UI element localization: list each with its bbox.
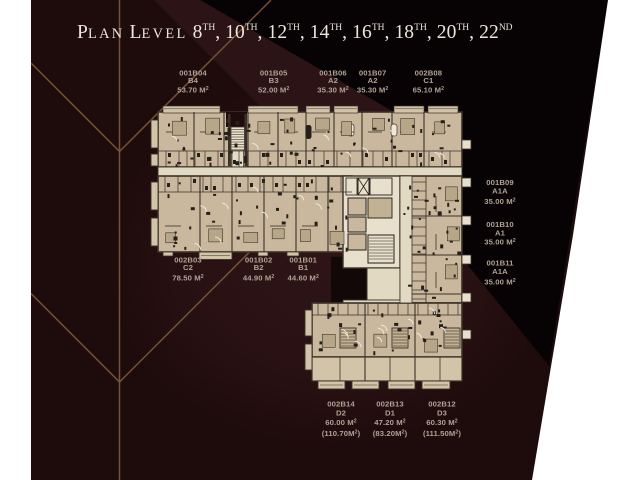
svg-text:B4: B4 <box>188 76 199 85</box>
svg-text:44.60 M2: 44.60 M2 <box>287 274 318 283</box>
svg-text:35.00 M2: 35.00 M2 <box>484 238 515 247</box>
svg-text:35.30 M2: 35.30 M2 <box>317 86 348 95</box>
svg-text:A2: A2 <box>328 76 338 85</box>
svg-text:A1A: A1A <box>492 187 508 196</box>
svg-text:002B14: 002B14 <box>327 400 355 409</box>
svg-text:60.00 M2: 60.00 M2 <box>325 418 356 427</box>
svg-text:65.10 M2: 65.10 M2 <box>413 86 444 95</box>
svg-text:35.30 M2: 35.30 M2 <box>357 86 388 95</box>
svg-text:002B12: 002B12 <box>428 400 456 409</box>
svg-text:D1: D1 <box>385 409 396 418</box>
svg-text:52.00 M2: 52.00 M2 <box>258 86 289 95</box>
svg-text:35.00 M2: 35.00 M2 <box>484 197 515 206</box>
svg-text:A2: A2 <box>368 76 378 85</box>
svg-text:D3: D3 <box>437 409 447 418</box>
svg-text:002B13: 002B13 <box>376 400 404 409</box>
svg-text:A1: A1 <box>495 229 506 238</box>
svg-text:78.50 M2: 78.50 M2 <box>172 274 203 283</box>
svg-text:53.70 M2: 53.70 M2 <box>177 86 208 95</box>
svg-text:35.00 M2: 35.00 M2 <box>484 278 515 287</box>
svg-text:D2: D2 <box>336 409 346 418</box>
svg-text:C1: C1 <box>423 76 434 85</box>
svg-text:C2: C2 <box>183 263 193 272</box>
svg-text:A1A: A1A <box>492 267 508 276</box>
svg-text:B3: B3 <box>269 76 279 85</box>
svg-text:44.90 M2: 44.90 M2 <box>243 274 274 283</box>
svg-text:B1: B1 <box>298 263 309 272</box>
svg-text:47.20 M2: 47.20 M2 <box>374 418 405 427</box>
svg-text:B2: B2 <box>254 263 264 272</box>
svg-text:60.30 M2: 60.30 M2 <box>426 418 457 427</box>
